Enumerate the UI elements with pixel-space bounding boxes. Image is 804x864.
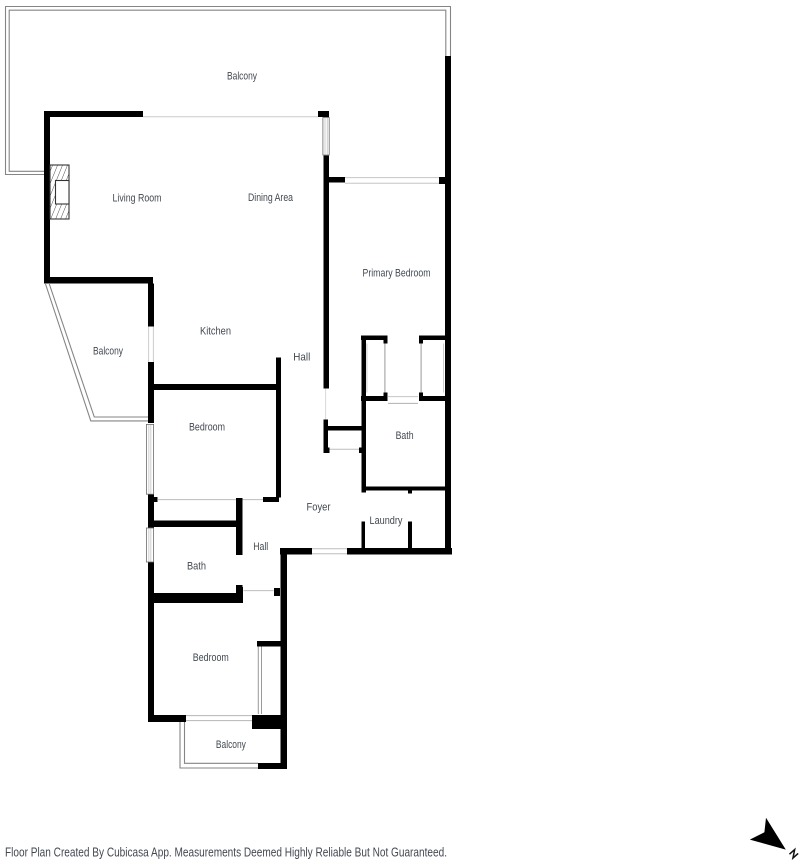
svg-text:Balcony: Balcony: [93, 345, 123, 357]
svg-text:Kitchen: Kitchen: [200, 326, 231, 338]
svg-text:Balcony: Balcony: [216, 739, 246, 751]
svg-text:Dining Area: Dining Area: [248, 192, 294, 204]
svg-text:Bedroom: Bedroom: [189, 422, 225, 434]
svg-text:Bath: Bath: [187, 561, 206, 573]
svg-text:Bath: Bath: [396, 430, 414, 442]
svg-text:Balcony: Balcony: [227, 71, 257, 83]
svg-text:Living Room: Living Room: [113, 193, 162, 205]
svg-text:Foyer: Foyer: [307, 502, 331, 514]
svg-text:Floor Plan Created By Cubicasa: Floor Plan Created By Cubicasa App. Meas…: [5, 845, 447, 860]
svg-text:Primary Bedroom: Primary Bedroom: [363, 268, 431, 280]
svg-text:Bedroom: Bedroom: [193, 652, 229, 664]
svg-text:Hall: Hall: [293, 351, 310, 363]
svg-text:Laundry: Laundry: [370, 515, 403, 527]
svg-text:Hall: Hall: [253, 541, 268, 553]
